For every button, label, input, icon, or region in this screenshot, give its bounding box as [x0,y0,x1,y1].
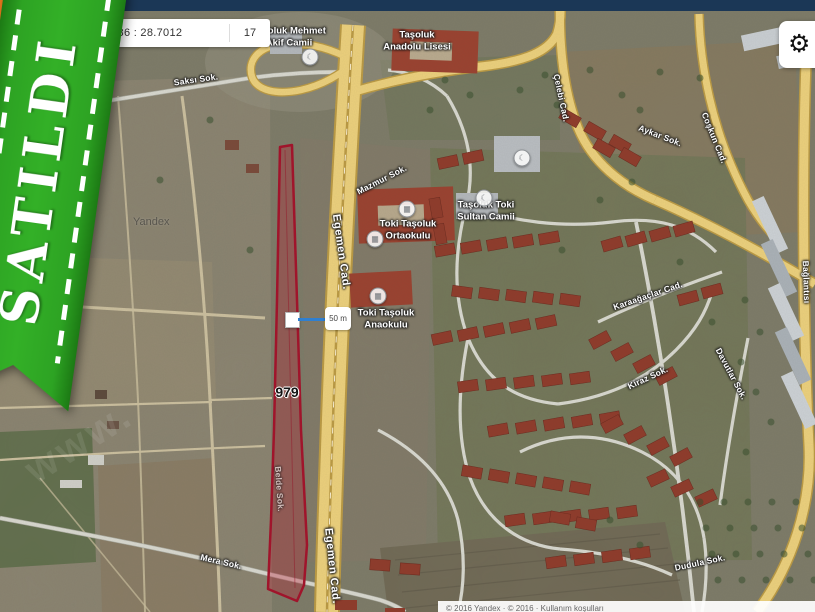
parcel-number: 979 [275,384,298,400]
settings-button[interactable]: ⚙ [779,21,815,68]
satellite-map[interactable] [0,0,815,612]
grain-overlay [0,0,815,612]
copyright-text: © 2016 Yandex · © 2016 · Kullanım koşull… [446,604,604,612]
ribbon-text: SATILDI [0,30,90,329]
gear-icon: ⚙ [788,29,810,58]
copyright-bar: © 2016 Yandex · © 2016 · Kullanım koşull… [438,601,815,612]
yandex-watermark: Yandex [133,216,170,228]
zoom-level: 17 [230,27,270,39]
map-viewport[interactable]: Saksı Sok.Taşoluk Mehmet Akif CamiiTaşol… [0,0,815,612]
